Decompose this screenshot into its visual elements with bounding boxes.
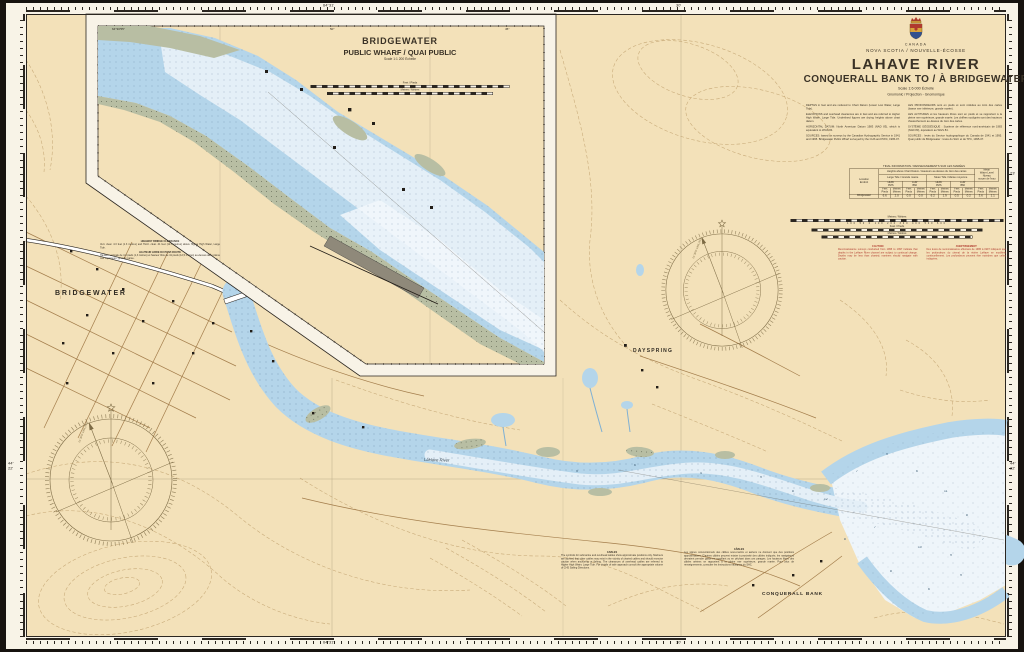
inset-grad-label: 50" [330, 28, 334, 31]
region-label: NOVA SCOTIA / NOUVELLE-ÉCOSSE [829, 49, 1003, 54]
margin-label: 30' [676, 4, 681, 8]
scale-bar-metres-2: Metres / Mètres [788, 232, 1006, 238]
scale-bars: Metres / Mètres 100 50 0 100 200 300 400… [788, 216, 1006, 244]
river-name-label: LaHave River [424, 458, 450, 463]
sounding: 9 [950, 554, 952, 557]
margin-label: 30' [676, 641, 681, 645]
sounding: 12 [824, 498, 828, 501]
sounding: 4 [700, 472, 702, 475]
notes-french: LES PROFONDEURS sont en pieds et sont ré… [908, 104, 1002, 144]
inset-scale-bars: Feet / Pieds Metres / Mètres [308, 82, 512, 104]
sounding: 8 [966, 514, 968, 517]
chart-projection: Gnomonic / Projection - Gnomonique [849, 93, 984, 96]
chart-title: LAHAVE RIVER [800, 56, 1024, 73]
chart-scale: Scale 1:6 000 Échelle [844, 87, 988, 91]
margin-label: 64°31' [323, 4, 334, 8]
place-label-dayspring: DAYSPRING [633, 348, 673, 354]
caution-english: CAUTION Reconnaissance surveys conducted… [838, 245, 918, 261]
title-block: CANADA NOVA SCOTIA / NOUVELLE-ÉCOSSE LAH… [800, 16, 1024, 99]
sounding: 9 [760, 476, 762, 479]
inset-scale: Scale 1:1 200 Échelle [357, 58, 443, 61]
inset-grad-label: 45" [505, 28, 509, 31]
sounding: 5 [576, 470, 578, 473]
sounding: 9 [960, 574, 962, 577]
scale-bar-feet: Feet / Pieds [788, 225, 1006, 231]
inset-title: BRIDGEWATER [322, 36, 478, 46]
sounding: 7 [856, 470, 858, 473]
sounding: 8 [792, 490, 794, 493]
inset-subtitle: PUBLIC WHARF / QUAI PUBLIC [322, 48, 478, 57]
sounding: 6 [928, 588, 930, 591]
place-label-bridgewater: BRIDGEWATER [55, 290, 127, 297]
cables-note-english: CABLES The symbols for submarine and ove… [561, 551, 663, 615]
margin-label: 44° 22' [8, 462, 14, 471]
inset-grad-label: 64°30'55" [112, 28, 125, 31]
inset-title-block: BRIDGEWATER PUBLIC WHARF / QUAI PUBLIC S… [322, 36, 478, 64]
margin-label: 23' [1010, 172, 1015, 176]
chart-subtitle: CONQUERALL BANK TO / À BRIDGEWATER [800, 74, 1024, 85]
chart-notes: DEPTHS in feet and are reduced to Chart … [806, 104, 1002, 166]
sounding: 7 [982, 538, 984, 541]
scale-bar-metres-1: Metres / Mètres 100 50 0 100 200 300 400… [788, 216, 1006, 224]
sounding: 8 [890, 570, 892, 573]
margin-label: 64°31' [323, 641, 334, 645]
country-label: CANADA [846, 43, 985, 47]
sounding: 6 [634, 464, 636, 467]
bridge-clearance-note: HIGHWAY BRIDGE CLEARANCE Vert. clear. 4.… [100, 240, 220, 280]
sounding: 9 [886, 453, 888, 456]
sounding: 6 [916, 470, 918, 473]
nautical-chart: 64°31' 30' 64°31' 30' 44° 22' 44° 22' 23… [0, 0, 1024, 652]
cables-note-french: CÂBLES Les signes conventionnels des câb… [684, 548, 794, 612]
place-label-conquerall-bank: CONQUERALL BANK [762, 592, 823, 597]
caution-french: AVERTISSEMENT Des levés de reconnaissanc… [927, 245, 1007, 261]
sounding: 11 [944, 490, 947, 493]
caution-note: CAUTION Reconnaissance surveys conducted… [838, 245, 1006, 279]
sounding: 8 [844, 538, 846, 541]
margin-label: 44° 22' [1010, 462, 1016, 471]
notes-english: DEPTHS in feet and are reduced to Chart … [806, 104, 900, 144]
sounding: 7 [874, 526, 876, 529]
tide-table: TIDAL INFORMATION / RENSEIGNEMENTS SUR L… [845, 165, 1003, 217]
canada-coat-of-arms-icon [903, 16, 929, 42]
sounding: 10 [918, 546, 922, 549]
